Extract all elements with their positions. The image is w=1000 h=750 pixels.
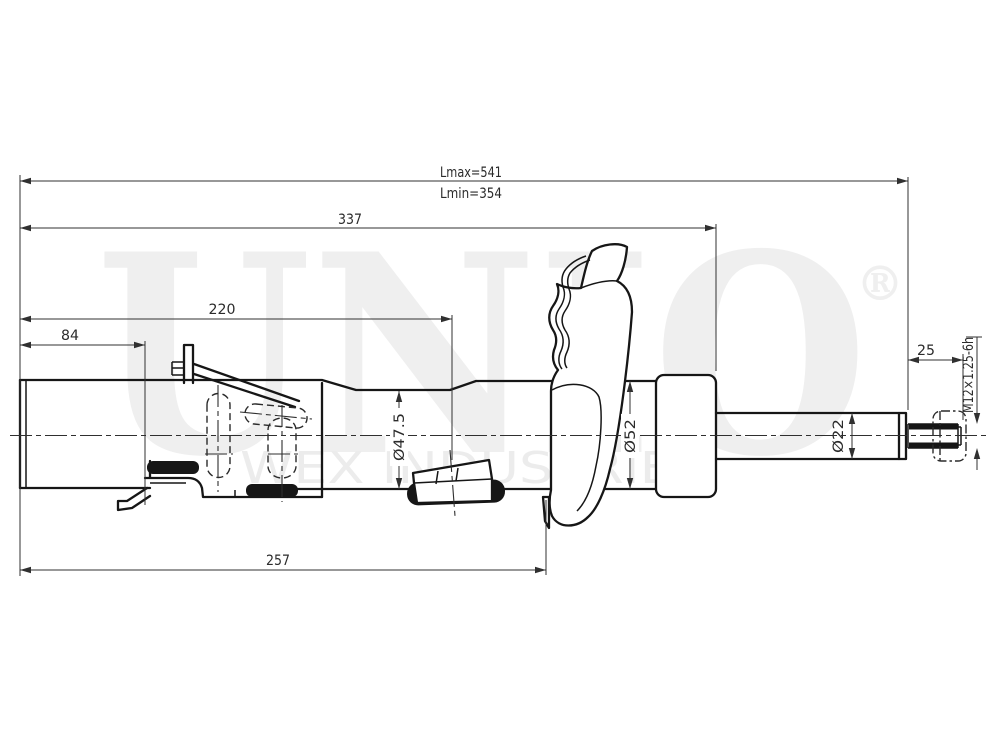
dim-dia-body-label: Ø47.5 bbox=[392, 413, 408, 461]
dim-thread-spec: M12×1.25-6h bbox=[961, 337, 982, 470]
dim-25: 25 bbox=[908, 343, 963, 363]
drawing-canvas: UNIO ® WEX INDUSTRIES bbox=[0, 0, 1000, 750]
dim-dia-collar-label: Ø52 bbox=[623, 419, 639, 453]
dim-257: 257 bbox=[20, 553, 546, 573]
dim-25-label: 25 bbox=[917, 343, 935, 359]
dim-337-label: 337 bbox=[338, 212, 362, 228]
dim-84-label: 84 bbox=[61, 328, 79, 344]
shock-absorber-technical-drawing: UNIO ® WEX INDUSTRIES bbox=[0, 0, 1000, 750]
weld-bead-left bbox=[147, 461, 199, 474]
dim-dia-rod-label: Ø22 bbox=[831, 419, 847, 453]
dim-257-label: 257 bbox=[266, 553, 290, 569]
dim-lmax-label: Lmax=541 bbox=[440, 165, 502, 181]
watermark-registered-icon: ® bbox=[856, 256, 904, 312]
dim-220-label: 220 bbox=[209, 302, 236, 318]
dim-dia-rod: Ø22 bbox=[831, 413, 855, 459]
dim-lmin-label: Lmin=354 bbox=[440, 186, 502, 202]
dim-thread-spec-label: M12×1.25-6h bbox=[961, 337, 977, 413]
weld-bead-right bbox=[246, 484, 298, 497]
watermark: UNIO ® WEX INDUSTRIES bbox=[96, 194, 904, 517]
